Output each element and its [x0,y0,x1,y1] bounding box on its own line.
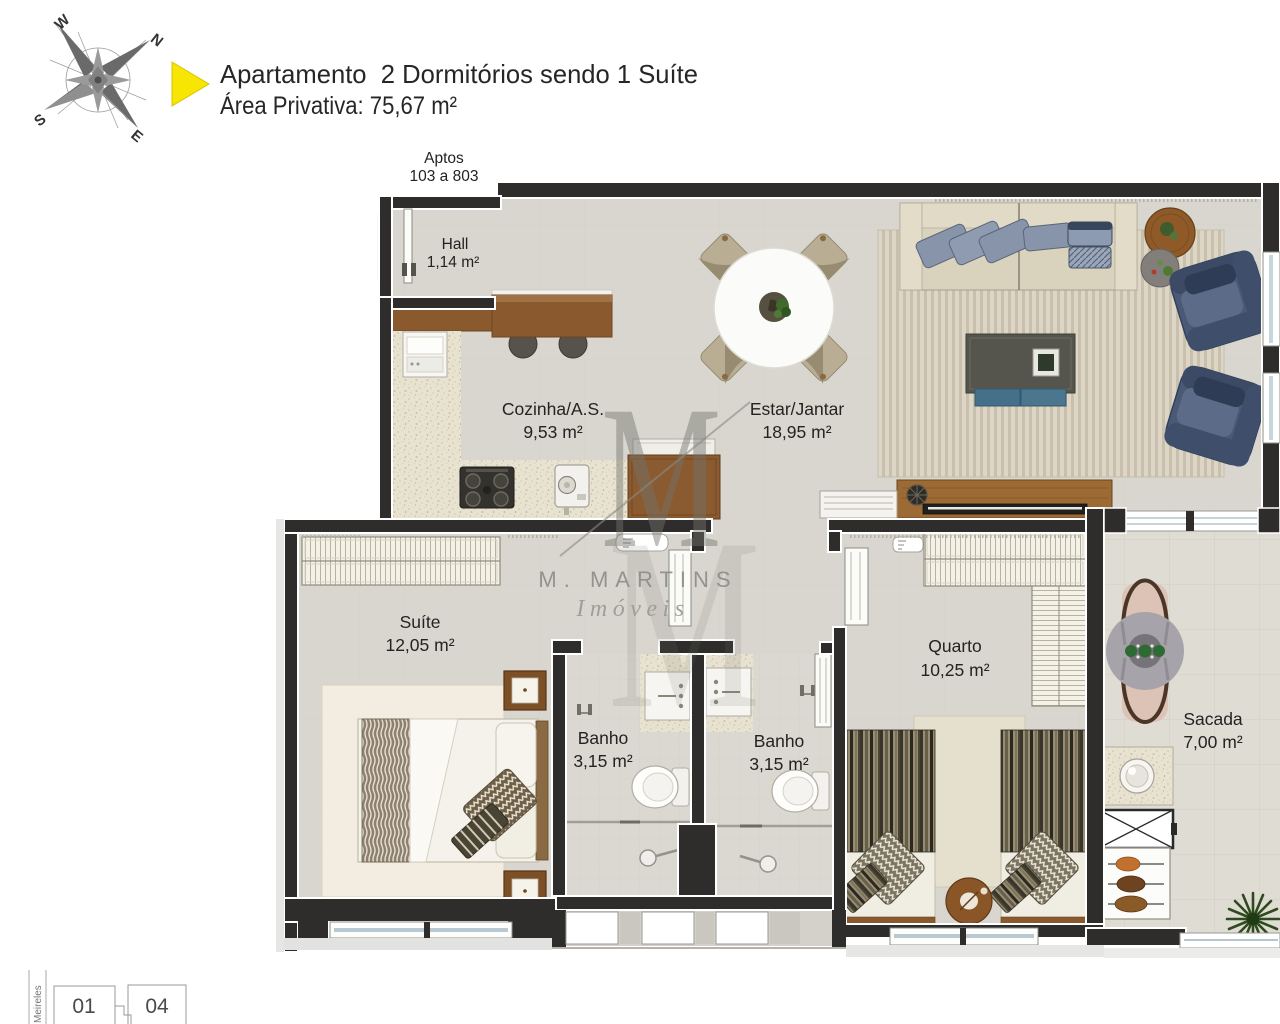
svg-text:7,00 m²: 7,00 m² [1183,732,1242,752]
svg-text:3,15 m²: 3,15 m² [749,754,808,774]
svg-text:9,53 m²: 9,53 m² [523,422,582,442]
svg-text:Cozinha/A.S.: Cozinha/A.S. [502,399,604,419]
svg-text:Hall: Hall [442,236,469,253]
svg-text:Área Privativa: 75,67 m²: Área Privativa: 75,67 m² [220,91,457,120]
svg-text:M: M [608,488,760,759]
svg-text:Sacada: Sacada [1183,709,1243,729]
svg-text:01: 01 [72,995,95,1018]
svg-text:18,95 m²: 18,95 m² [762,422,831,442]
svg-text:1,14 m²: 1,14 m² [427,254,480,271]
svg-text:12,05 m²: 12,05 m² [385,635,454,655]
svg-text:Aptos: Aptos [424,150,464,167]
svg-text:Apartamento 2 Dormitórios sen: Apartamento 2 Dormitórios sendo 1 Suíte [220,59,698,89]
svg-text:Imóveis: Imóveis [575,596,689,622]
svg-text:M. MARTINS: M. MARTINS [538,567,737,592]
svg-text:04: 04 [145,995,169,1018]
svg-text:Quarto: Quarto [928,636,982,656]
svg-text:Meireles: Meireles [33,985,44,1023]
svg-text:10,25 m²: 10,25 m² [920,660,989,680]
svg-text:Estar/Jantar: Estar/Jantar [750,399,845,419]
svg-text:103 a 803: 103 a 803 [410,168,479,185]
svg-text:Banho: Banho [754,731,805,751]
svg-text:Banho: Banho [578,728,629,748]
svg-text:3,15 m²: 3,15 m² [573,751,632,771]
svg-text:Suíte: Suíte [400,612,441,632]
